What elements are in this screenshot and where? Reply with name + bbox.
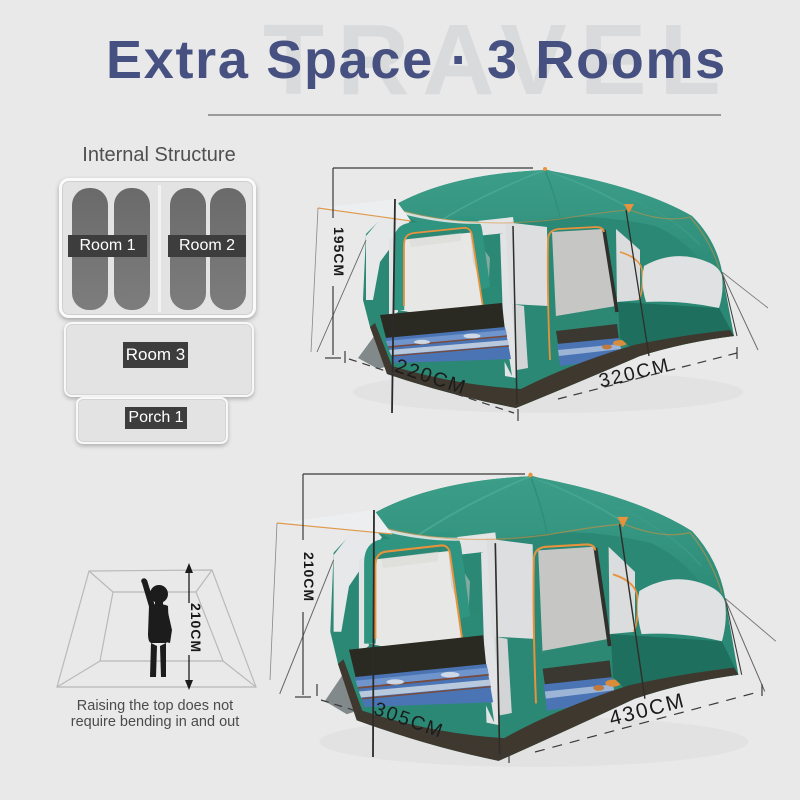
- svg-text:195CM: 195CM: [331, 227, 347, 277]
- svg-text:210CM: 210CM: [188, 603, 204, 653]
- svg-text:210CM: 210CM: [301, 552, 317, 602]
